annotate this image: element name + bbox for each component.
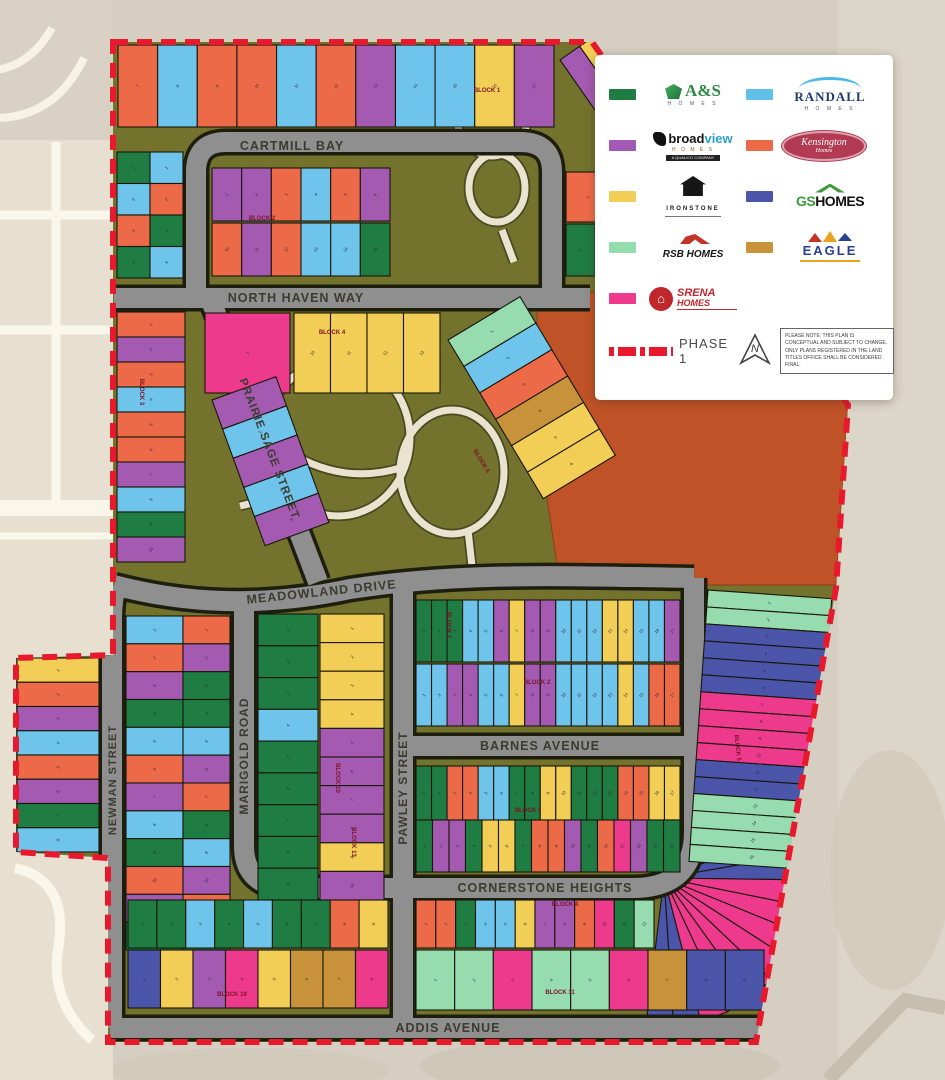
eagle-name: EAGLE	[803, 243, 858, 258]
broadview-micro: A QUALICO COMPANY	[666, 155, 720, 161]
block-label: BLOCK 1	[445, 612, 451, 639]
srena-rule	[677, 309, 737, 310]
lot-strip: 1234	[150, 152, 183, 278]
ironstone-logo: IRONSTONE	[645, 176, 741, 217]
block-label: BLOCK 4	[319, 330, 346, 336]
block-label: BLOCK 2	[249, 216, 276, 222]
legend-footer: PHASE 1 N PLEASE NOTE: THIS PLAN IS CONC…	[609, 328, 883, 374]
rsb-swatch	[609, 242, 636, 253]
lot-strip: 12345678	[17, 658, 99, 852]
randall-name: RANDALL	[794, 89, 865, 104]
kensington-oval: Kensington Homes	[782, 131, 866, 161]
disclaimer-note: PLEASE NOTE: THIS PLAN IS CONCEPTUAL AND…	[780, 328, 894, 374]
as-house-icon	[665, 84, 682, 99]
ironstone-name: IRONSTONE	[666, 206, 720, 212]
legend-grid: A&S H O M E S broadview H O M E S A QUAL…	[609, 69, 883, 324]
lot-strip: 12345678910111213141516	[416, 820, 680, 872]
legend-row-gs-homes: GSHOMES	[746, 171, 883, 222]
gs-name1: GS	[796, 193, 815, 209]
lot-strip: 101112131415	[212, 223, 390, 276]
legend-row-as-homes: A&S H O M E S	[609, 69, 746, 120]
phase1-label: PHASE 1	[679, 336, 728, 366]
lot-strip: 10111213	[294, 313, 440, 393]
kensington-swatch	[746, 140, 773, 151]
broadview-name1: broad	[668, 131, 704, 146]
legend-panel: A&S H O M E S broadview H O M E S A QUAL…	[595, 55, 893, 400]
ironstone-swatch	[609, 191, 636, 202]
srena-name1: SRENA	[677, 288, 737, 299]
street-label: NEWMAN STREET	[107, 725, 119, 835]
lot-strip: 12345678910	[117, 312, 185, 562]
eagle-rule	[800, 260, 860, 262]
aerial-blotch	[830, 750, 945, 990]
lot-strip: 1234567891011121314151617	[416, 600, 680, 662]
street-label: CARTMILL BAY	[240, 139, 344, 153]
as-homes-name: A&S	[685, 81, 721, 100]
srena-house-icon: ⌂	[649, 287, 673, 311]
block-label: BLOCK 1	[474, 88, 501, 94]
gs-name2: HOMES	[815, 193, 864, 209]
block-label: BLOCK 19	[217, 992, 247, 998]
broadview-logo: broadview H O M E S A QUALICO COMPANY	[645, 131, 741, 161]
lot-strip: 123456789101112	[416, 900, 654, 948]
randall-swoosh-icon	[799, 77, 861, 89]
lot-strip: 123456789	[128, 900, 388, 948]
street-label: CORNERSTONE HEIGHTS	[457, 881, 632, 895]
lot-strip: 7891011121314151617	[118, 45, 554, 127]
legend-row-rsb-homes: RSB HOMES	[609, 222, 746, 273]
site-plan-page: 7891011121314151617123412341234123456101…	[0, 0, 945, 1080]
rsb-name: RSB HOMES	[663, 249, 724, 260]
as-homes-sub: H O M E S	[645, 102, 741, 107]
broadview-name2: view	[704, 131, 732, 146]
rsb-roof-icon	[676, 234, 710, 244]
randall-swatch	[746, 89, 773, 100]
block-label: BLOCK 13	[350, 827, 356, 857]
broadview-leaf-icon	[653, 132, 666, 146]
srena-swatch	[609, 293, 636, 304]
block-label: BLOCK 3	[515, 808, 542, 814]
kensington-sub: Homes	[782, 148, 866, 154]
phase1-dash-symbol	[609, 347, 673, 356]
eagle-swatch	[746, 242, 773, 253]
broadview-sub: H O M E S	[645, 148, 741, 153]
rsb-homes-logo: RSB HOMES	[645, 234, 741, 261]
gs-homes-swatch	[746, 191, 773, 202]
legend-row-kensington-homes: Kensington Homes	[746, 120, 883, 171]
street-label: PAWLEY STREET	[396, 731, 410, 844]
srena-homes-logo: ⌂SRENAHOMES	[645, 287, 741, 311]
broadview-swatch	[609, 140, 636, 151]
street-label: ADDIS AVENUE	[395, 1021, 500, 1035]
block-label: BLOCK 10	[334, 763, 340, 793]
lot-strip: 12345678	[128, 950, 388, 1008]
lot-strip: 12345678910	[320, 614, 384, 900]
legend-row-randall-homes: RANDALL H O M E S	[746, 69, 883, 120]
as-homes-logo: A&S H O M E S	[645, 82, 741, 107]
ironstone-rule	[665, 216, 721, 217]
kensington-homes-logo: Kensington Homes	[782, 131, 878, 161]
block-label: BLOCK 2	[524, 680, 551, 686]
as-homes-swatch	[609, 89, 636, 100]
legend-row-srena-homes: ⌂SRENAHOMES	[609, 273, 746, 324]
eagle-logo: EAGLE	[782, 233, 878, 262]
ironstone-house-icon	[680, 176, 706, 196]
lot-strip: 123456	[212, 168, 390, 221]
gs-homes-logo: GSHOMES	[782, 184, 878, 210]
north-arrow-icon: N	[736, 332, 774, 370]
legend-row-ironstone: IRONSTONE	[609, 171, 746, 222]
block-label: BLOCK 4	[552, 902, 579, 908]
legend-row-eagle: EAGLE	[746, 222, 883, 273]
svg-text:N: N	[751, 343, 759, 355]
legend-row-broadview: broadview H O M E S A QUALICO COMPANY	[609, 120, 746, 171]
lot-strip: 123456789	[416, 950, 764, 1010]
lot-strip: 1234567891011121314151617	[416, 766, 680, 820]
srena-name2: HOMES	[677, 299, 737, 308]
street-label: NORTH HAVEN WAY	[228, 291, 365, 305]
eagle-peaks-icon	[782, 233, 878, 242]
lot-strip: 123456789	[258, 614, 318, 900]
randall-homes-logo: RANDALL H O M E S	[782, 77, 878, 112]
lot-strip: 1234567891011121314151617	[416, 664, 680, 726]
block-label: BLOCK 3	[138, 379, 144, 406]
randall-sub: H O M E S	[782, 107, 878, 112]
kensington-name: Kensington	[782, 138, 866, 148]
gs-roof-icon	[815, 184, 845, 193]
existing-neighborhood	[0, 0, 113, 1080]
block-label: BLOCK 11	[545, 990, 575, 996]
street-label: BARNES AVENUE	[480, 739, 600, 753]
street-label: MARIGOLD ROAD	[237, 698, 251, 815]
lot-strip: 1234	[117, 152, 150, 278]
